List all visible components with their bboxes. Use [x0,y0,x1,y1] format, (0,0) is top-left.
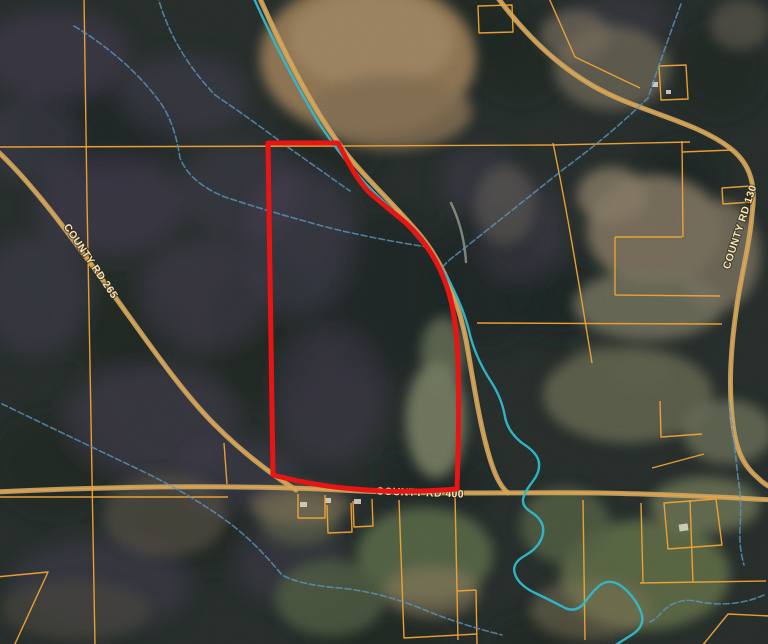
house [300,502,307,507]
house [679,523,689,531]
house [666,90,671,94]
terrain-layer [0,0,768,644]
aerial-parcel-map: COUNTY RD 265 COUNTY RD 130 COUNTY RD 40… [0,0,768,644]
image-grain [0,0,768,644]
house [325,498,331,503]
house [354,499,361,504]
map-canvas: COUNTY RD 265 COUNTY RD 130 COUNTY RD 40… [0,0,768,644]
